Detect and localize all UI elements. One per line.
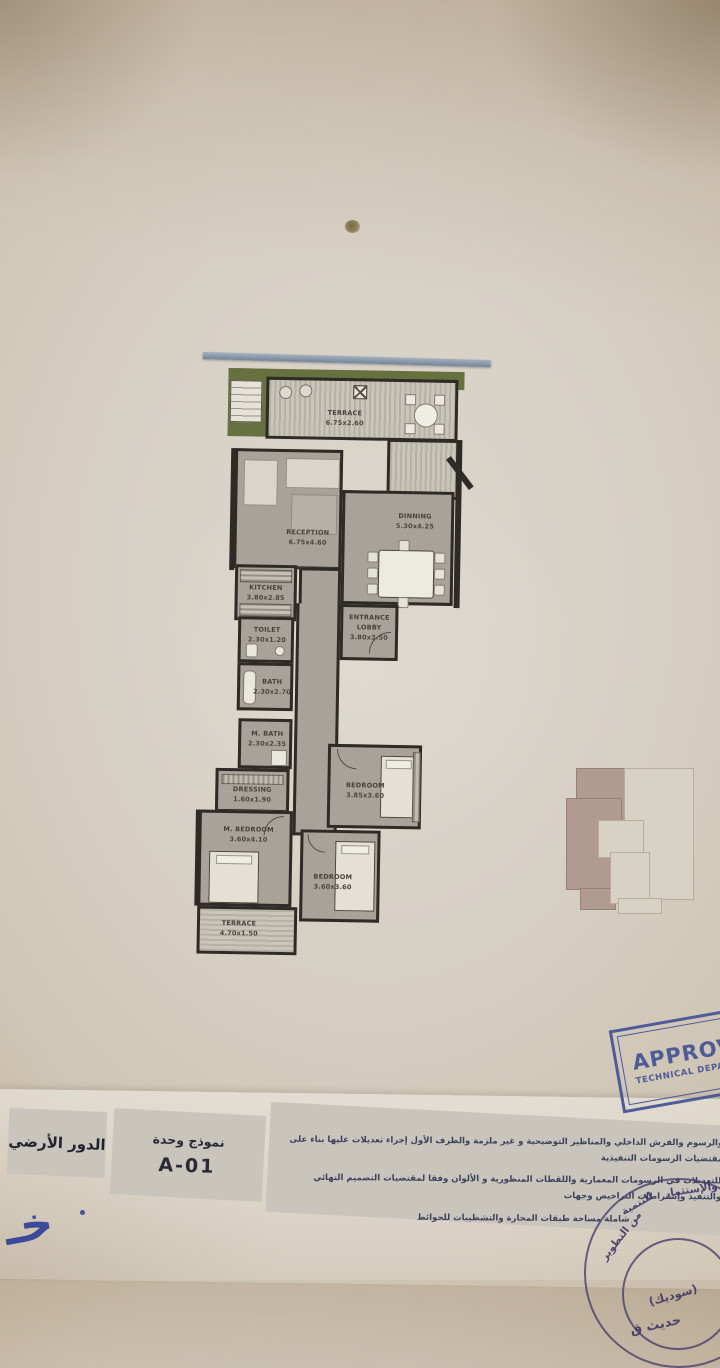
room-name: BEDROOM — [305, 872, 361, 883]
closet-icon — [221, 774, 283, 785]
room-dims: 4.70x1.50 — [208, 928, 270, 939]
room-label: ENTRANCE LOBBY 3.80x2.50 — [344, 613, 395, 643]
room-label: TERRACE 4.70x1.50 — [208, 919, 270, 940]
approved-stamp: APPROVED TECHNICAL DEPARTMENT — [609, 1001, 720, 1114]
shower-icon — [271, 750, 287, 766]
room-dims: 5.30x4.25 — [375, 521, 455, 532]
room-dims: 3.80x2.85 — [234, 593, 298, 604]
room-label: DRESSING 1.60x1.90 — [227, 785, 277, 805]
room-dims: 3.85x3.60 — [336, 791, 394, 802]
floor-plan: TERRACE 6.75x2.60 RECEPTION 6.75x4.60 DI… — [182, 347, 493, 967]
room-entrance-lobby: ENTRANCE LOBBY 3.80x2.50 — [340, 604, 399, 661]
room-kitchen: KITCHEN 3.80x2.85 — [234, 564, 297, 621]
room-name: ENTRANCE LOBBY — [344, 613, 394, 633]
stairs — [230, 380, 263, 423]
basin-icon — [275, 646, 285, 656]
paper-stain-dot — [345, 220, 360, 233]
room-name: M. BEDROOM — [216, 825, 282, 836]
key-plan-building — [618, 898, 662, 914]
room-master-bedroom: M. BEDROOM 3.60x4.10 — [197, 810, 293, 908]
approved-stamp-inner-border: APPROVED TECHNICAL DEPARTMENT — [617, 1009, 720, 1105]
room-dims: 2.30x2.70 — [252, 687, 292, 697]
room-dims: 1.60x1.90 — [227, 795, 277, 806]
sofa-icon — [286, 458, 341, 489]
closet-icon — [412, 752, 421, 822]
bed-icon — [208, 851, 259, 904]
room-label: BEDROOM 3.85x3.60 — [336, 781, 394, 802]
floor-name: الدور الأرضي — [8, 1132, 106, 1154]
room-label: BEDROOM 3.60x3.60 — [305, 872, 361, 892]
wc-icon — [246, 643, 258, 657]
plant-pot-icon — [279, 386, 292, 399]
room-terrace-top: TERRACE 6.75x2.60 — [265, 377, 458, 442]
room-dims: 6.75x2.60 — [303, 418, 387, 429]
room-bedroom-1: BEDROOM 3.85x3.60 — [327, 744, 422, 830]
sofa-icon — [243, 459, 278, 506]
outdoor-table-icon — [405, 394, 446, 435]
room-label: M. BEDROOM 3.60x4.10 — [215, 825, 281, 846]
terrace-railing — [203, 352, 491, 367]
room-dims: 3.60x4.10 — [215, 835, 281, 846]
unit-model-label: نموذج وحدة — [152, 1131, 225, 1150]
room-label: KITCHEN 3.80x2.85 — [234, 583, 298, 604]
room-label: RECEPTION 6.75x4.60 — [273, 528, 343, 549]
room-dims: 3.80x2.50 — [344, 633, 394, 644]
room-dressing: DRESSING 1.60x1.90 — [215, 768, 290, 813]
room-master-bath: M. BATH 2.30x2.35 — [238, 718, 293, 769]
room-name: M. BATH — [245, 729, 289, 740]
handwritten-mark: خـ — [0, 1194, 57, 1256]
unit-code: A-01 — [159, 1154, 217, 1178]
room-terrace-bottom: TERRACE 4.70x1.50 — [196, 906, 297, 956]
room-label: DINNING 5.30x4.25 — [375, 512, 455, 533]
notes-line: والرسوم والفرش الداخلي والمناظير التوضيح… — [285, 1132, 720, 1168]
room-dims: 2.30x1.20 — [245, 635, 289, 646]
kitchen-counter-icon — [240, 569, 292, 583]
title-block-unit-cell: نموذج وحدة A-01 — [110, 1108, 266, 1202]
room-dims: 3.60x3.60 — [305, 882, 361, 893]
key-plan-building — [610, 852, 650, 904]
room-name: DRESSING — [227, 785, 277, 796]
key-plan — [558, 750, 708, 925]
title-block-floor-cell: الدور الأرضي — [7, 1108, 108, 1178]
room-label: BATH 2.30x2.70 — [252, 677, 292, 697]
room-label: TOILET 2.30x1.20 — [245, 625, 289, 645]
pen-dot — [80, 1210, 85, 1215]
door-arc — [307, 834, 325, 852]
room-label: M. BATH 2.30x2.35 — [245, 729, 289, 749]
room-bedroom-2: BEDROOM 3.60x3.60 — [299, 829, 381, 922]
plant-pot-icon — [299, 384, 312, 397]
room-dining: DINNING 5.30x4.25 — [341, 490, 455, 606]
kitchen-counter-icon — [239, 603, 291, 617]
column-marker-icon — [353, 385, 367, 399]
room-label: TERRACE 6.75x2.60 — [303, 408, 387, 429]
room-dims: 6.75x4.60 — [273, 538, 343, 549]
door-arc — [337, 749, 357, 769]
room-dims: 2.30x2.35 — [245, 739, 289, 750]
room-bath: BATH 2.30x2.70 — [237, 662, 294, 711]
dining-table-icon — [378, 550, 435, 599]
room-reception: RECEPTION 6.75x4.60 — [233, 448, 343, 570]
room-toilet: TOILET 2.30x1.20 — [238, 616, 295, 663]
